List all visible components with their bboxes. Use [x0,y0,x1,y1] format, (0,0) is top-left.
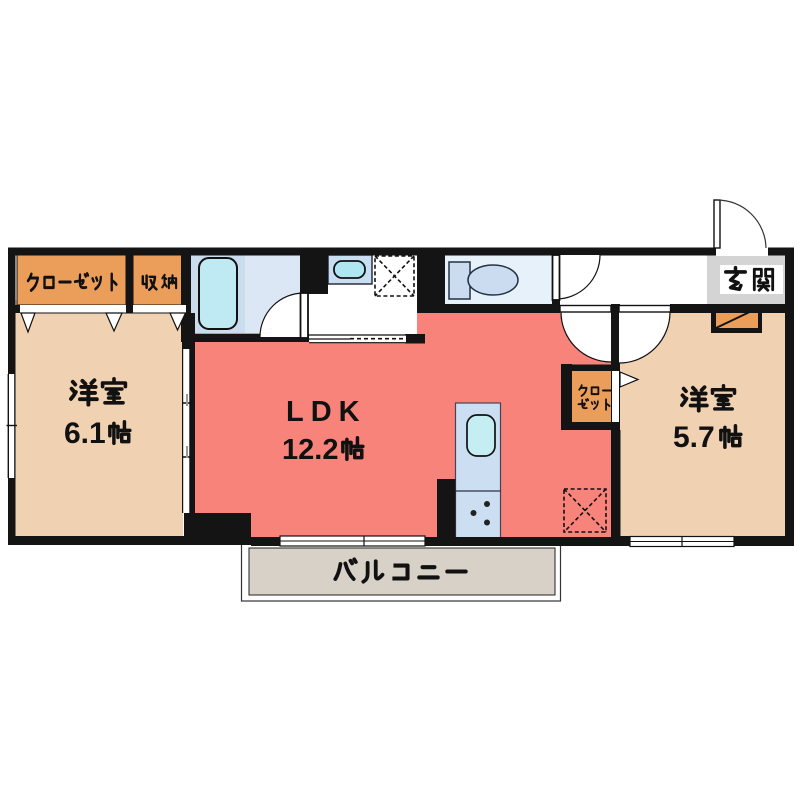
svg-text:LDK: LDK [286,396,367,428]
svg-text:12.2: 12.2 [282,434,338,466]
svg-text:6.1: 6.1 [64,417,106,450]
svg-text:5.7: 5.7 [673,421,715,454]
